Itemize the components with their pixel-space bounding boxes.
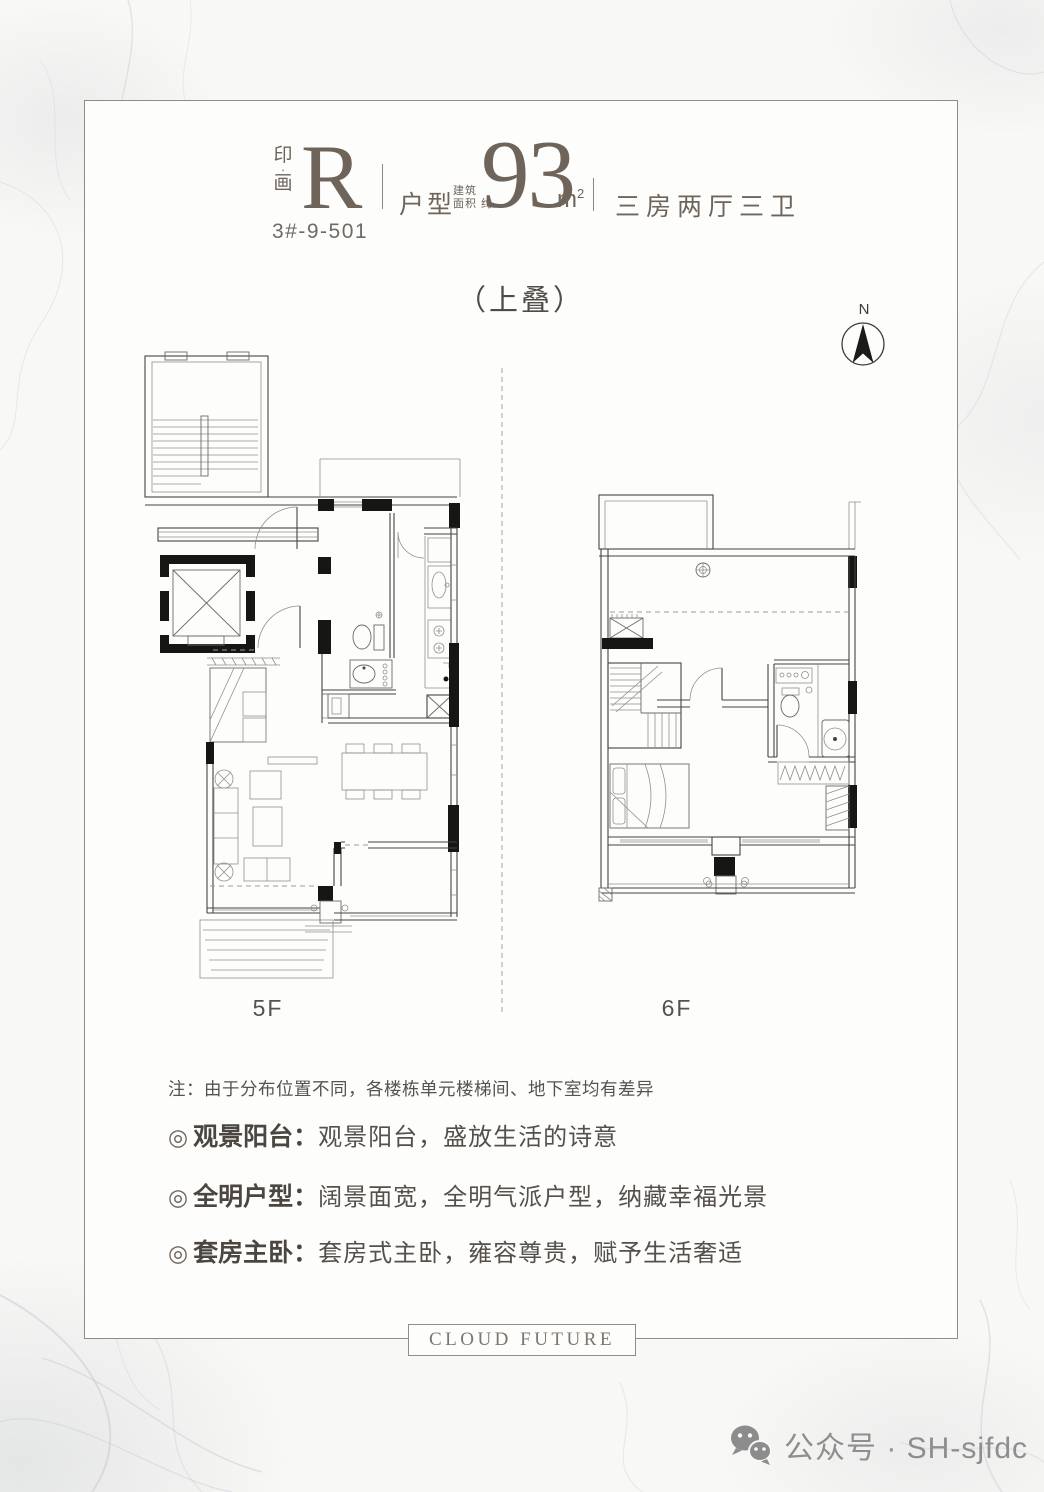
wechat-footer: 公众号 · SH-sjfdc	[728, 1422, 1028, 1468]
floor-plan-5f	[145, 352, 460, 978]
brand-box: CLOUD FUTURE	[408, 1324, 636, 1356]
poster-page: 印 · 画 R 户型 建筑 面积 约 93 m2 三房两厅三卫 3#-9-501…	[0, 0, 1044, 1492]
floor-plan-6f	[599, 495, 861, 901]
bullet-icon: ◎	[168, 1240, 188, 1267]
wechat-account-label: 公众号 · SH-sjfdc	[784, 1423, 1028, 1467]
feature-item-suite-master: ◎ 套房主卧： 套房式主卧，雍容尊贵，赋予生活奢适	[168, 1233, 743, 1263]
bullet-icon: ◎	[168, 1124, 188, 1151]
feature-item-bright-layout: ◎ 全明户型： 阔景面宽，全明气派户型，纳藏幸福光景	[168, 1177, 768, 1207]
header-divider	[382, 164, 383, 209]
feature-title: 套房主卧：	[193, 1233, 318, 1269]
compass-n-label: N	[854, 301, 874, 318]
feature-desc: 观景阳台，盛放生活的诗意	[318, 1117, 618, 1152]
unit-type-letter: R	[301, 133, 362, 221]
bullet-icon: ◎	[168, 1184, 188, 1211]
wechat-icon	[728, 1422, 774, 1468]
feature-title: 观景阳台：	[193, 1117, 318, 1153]
area-unit-sup: 2	[577, 186, 584, 201]
rooms-label: 三房两厅三卫	[615, 187, 801, 223]
floor-plans-drawing: .w{fill:none;stroke:#44443f;stroke-width…	[84, 330, 958, 1030]
feature-desc: 套房式主卧，雍容尊贵，赋予生活奢适	[318, 1233, 743, 1268]
brand-box-text: CLOUD FUTURE	[429, 1329, 615, 1351]
feature-item-view-balcony: ◎ 观景阳台： 观景阳台，盛放生活的诗意	[168, 1117, 618, 1147]
brand-mark: 印 · 画	[272, 146, 294, 193]
floor-label-5f: 5F	[242, 995, 294, 1022]
area-unit: m2	[557, 186, 584, 214]
stack-subtitle: （上叠）	[84, 277, 958, 319]
unit-type-label: 户型	[399, 185, 455, 221]
brand-char-bottom: 画	[272, 174, 294, 193]
feature-title: 全明户型：	[193, 1177, 318, 1213]
note-text: 注：由于分布位置不同，各楼栋单元楼梯间、地下室均有差异	[168, 1076, 654, 1101]
floor-label-6f: 6F	[651, 995, 703, 1022]
unit-code: 3#-9-501	[272, 220, 368, 244]
feature-desc: 阔景面宽，全明气派户型，纳藏幸福光景	[318, 1177, 768, 1212]
header-divider-2	[593, 178, 594, 211]
